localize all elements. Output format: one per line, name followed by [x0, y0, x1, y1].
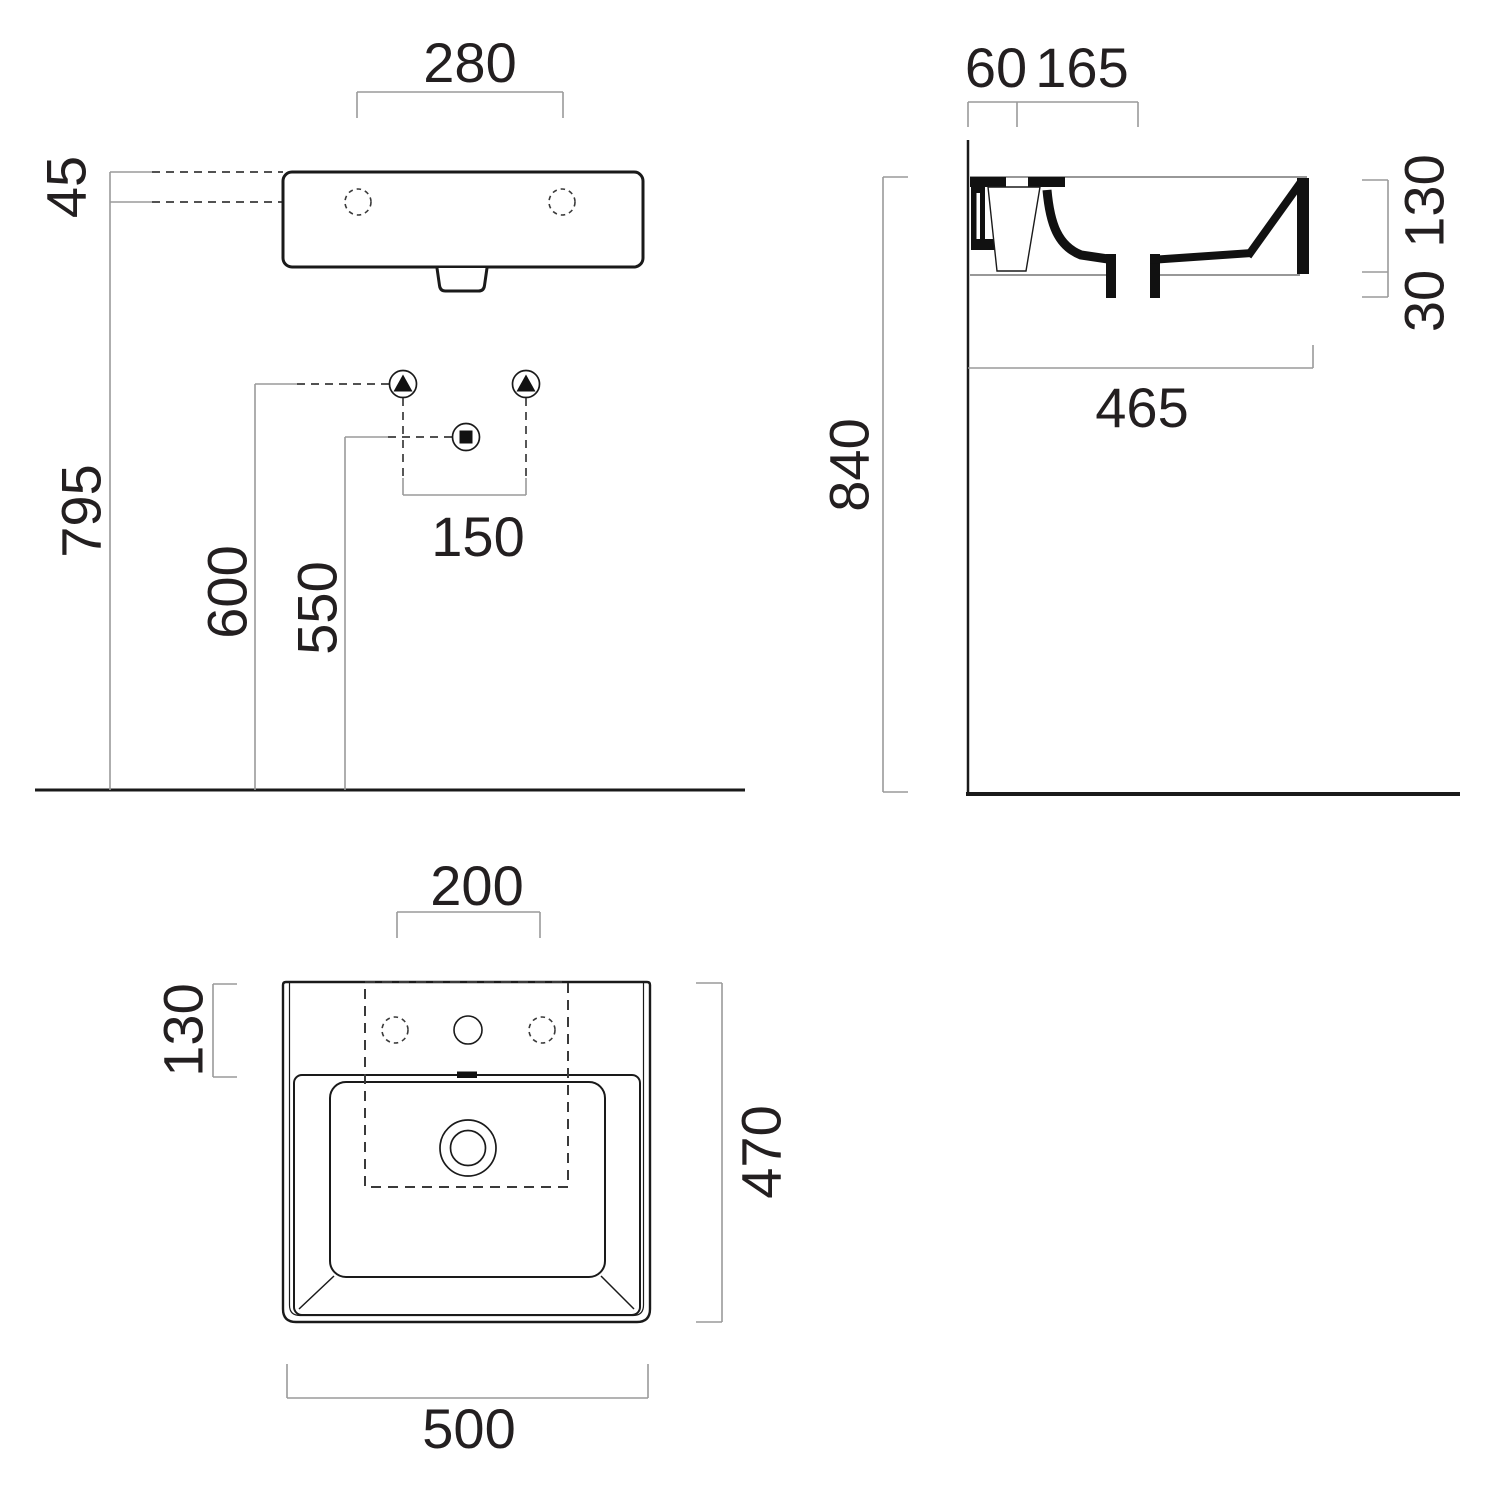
- waste-symbol: [453, 424, 480, 451]
- dim-bracket-280: [357, 92, 563, 118]
- plan-overflow-slot: [457, 1072, 477, 1079]
- section-deck-cut-left: [970, 177, 1006, 187]
- section-deck-cut-right: [1028, 177, 1065, 187]
- dim-label-840: 840: [818, 418, 881, 511]
- dim-label-600: 600: [196, 545, 259, 638]
- dim-label-30: 30: [1393, 270, 1456, 332]
- dim-label-550: 550: [286, 561, 349, 654]
- dim-bracket-60-165: [968, 102, 1138, 127]
- section-basin-wall: [1047, 190, 1108, 259]
- front-view: 280 150 45 795 600 550: [35, 31, 746, 790]
- washbasin-technical-drawing: 280 150 45 795 600 550: [0, 0, 1500, 1500]
- dim-label-200: 200: [430, 854, 523, 917]
- side-view: 60 165 465 130 30 840: [818, 36, 1461, 795]
- fixing-symbol-right: [513, 371, 540, 398]
- dim-label-45: 45: [35, 156, 98, 218]
- dim-label-465: 465: [1095, 376, 1188, 439]
- waste-square-icon: [460, 431, 473, 444]
- dim-line-840: [883, 177, 908, 792]
- section-front-edge: [1297, 178, 1309, 274]
- plan-basin-bottom: [330, 1082, 605, 1277]
- dim-label-280: 280: [423, 31, 516, 94]
- dim-label-165: 165: [1035, 36, 1128, 99]
- dim-label-130-plan: 130: [152, 983, 215, 1076]
- dim-line-470: [696, 983, 722, 1322]
- basin-section: [970, 177, 1309, 298]
- basin-drain-stub: [437, 268, 487, 291]
- dim-line-500: [287, 1364, 648, 1398]
- fixing-symbol-left: [390, 371, 417, 398]
- dim-label-130-side: 130: [1393, 154, 1456, 247]
- basin-front-outline: [283, 172, 643, 267]
- section-deck-web: [988, 187, 1040, 271]
- drawing-canvas: 280 150 45 795 600 550: [0, 0, 1500, 1500]
- section-drain-wall-left: [1106, 254, 1116, 298]
- dim-bracket-130-30: [1362, 180, 1388, 297]
- dim-bracket-130-plan: [213, 984, 237, 1077]
- plan-view: 200 500 130 470: [152, 854, 793, 1460]
- dim-label-470: 470: [730, 1105, 793, 1198]
- dim-label-795: 795: [50, 464, 113, 557]
- dim-bracket-150: [403, 478, 526, 495]
- dim-line-465: [968, 345, 1313, 368]
- section-basin-floor: [1150, 249, 1252, 264]
- dim-label-150: 150: [431, 505, 524, 568]
- dim-label-500: 500: [422, 1397, 515, 1460]
- section-mount-slot: [977, 193, 981, 239]
- dim-ticks-45: [110, 172, 152, 202]
- section-back-slope: [1248, 182, 1301, 256]
- dim-label-60: 60: [965, 36, 1027, 99]
